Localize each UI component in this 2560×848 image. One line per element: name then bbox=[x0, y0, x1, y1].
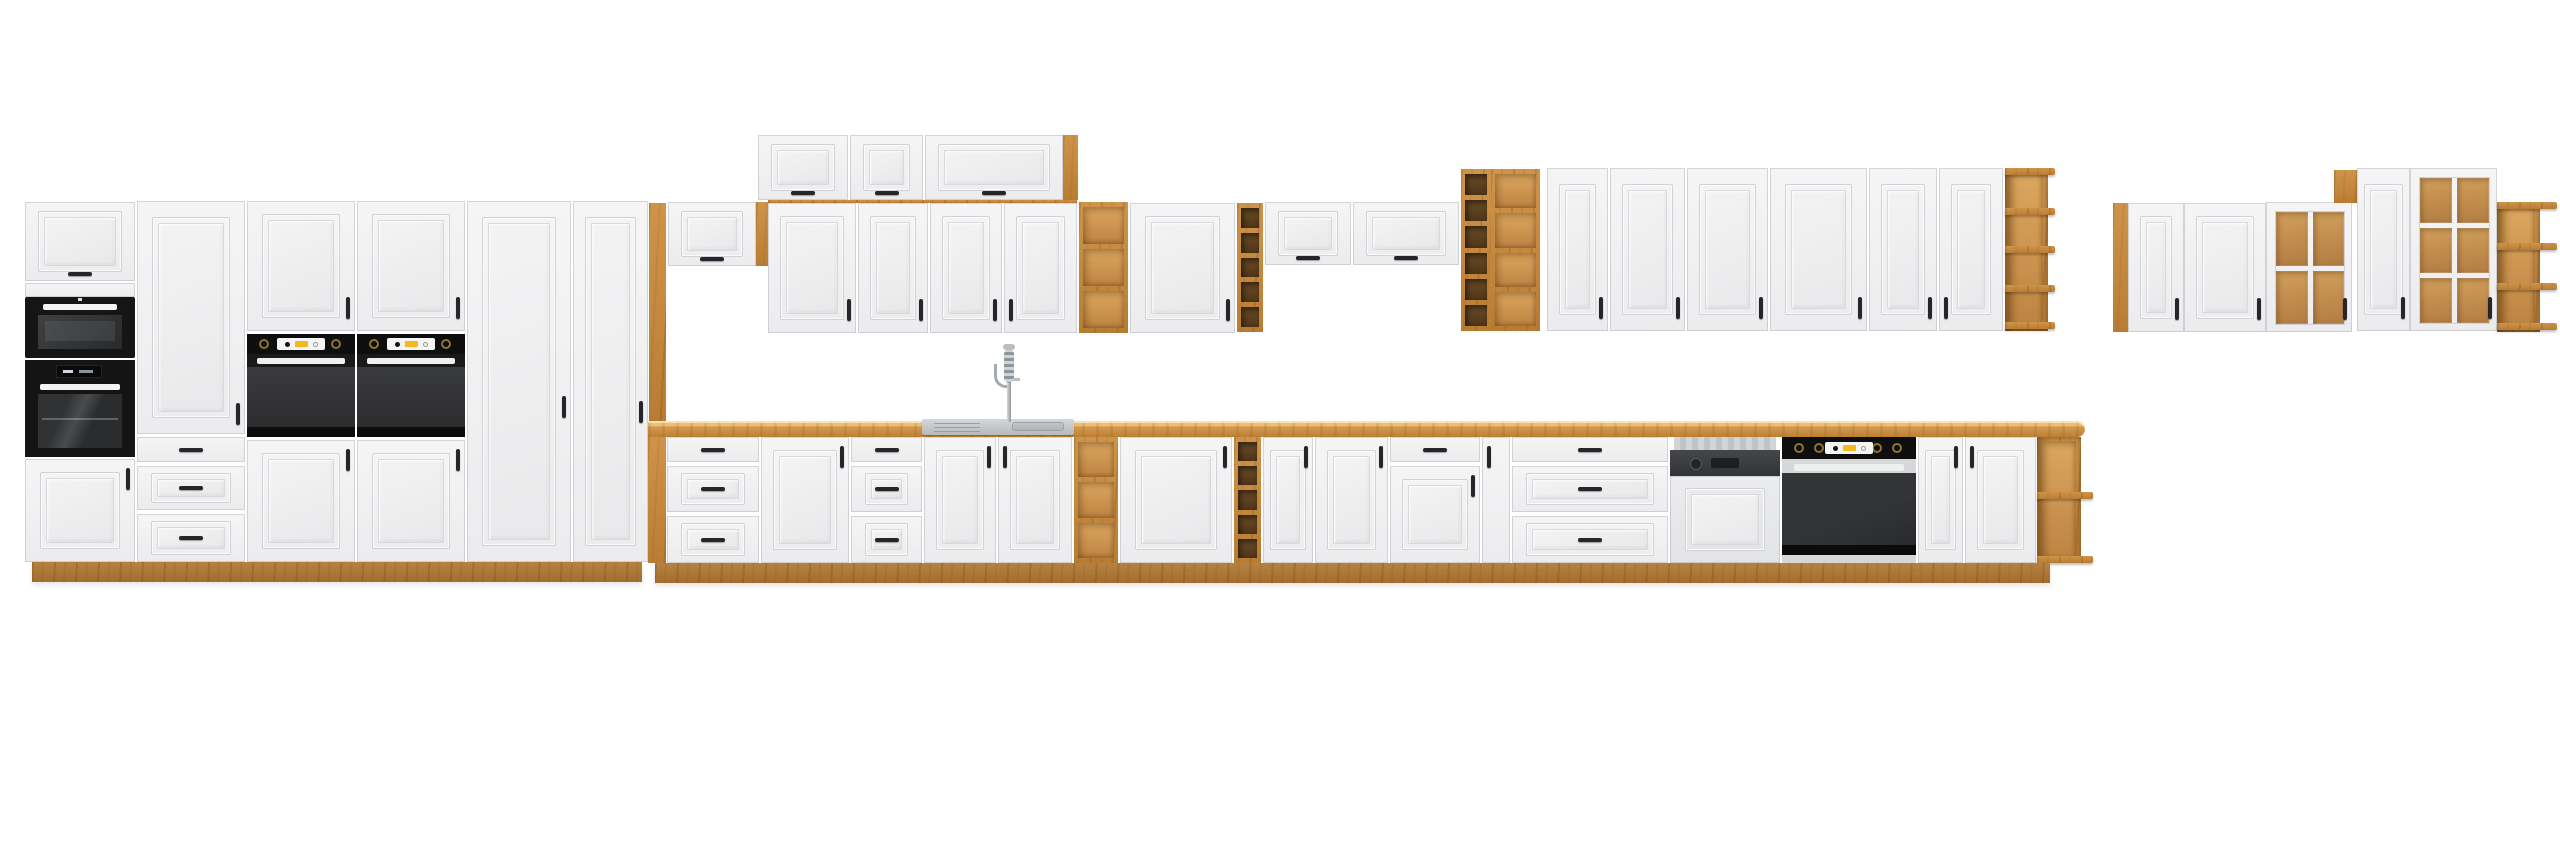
countertop bbox=[648, 421, 2085, 437]
base-plinth bbox=[655, 563, 2050, 583]
microwave bbox=[25, 297, 135, 358]
wall-oak-open-shelf bbox=[1491, 169, 1540, 331]
wall-b-door-5 bbox=[1869, 168, 1937, 331]
wall-a-door-2 bbox=[858, 203, 928, 333]
right-group-a-door-2 bbox=[2184, 203, 2266, 332]
base-door-2 bbox=[1120, 437, 1232, 563]
wall-oak-rack bbox=[1461, 169, 1491, 331]
wall-b-door-2 bbox=[1610, 168, 1685, 331]
oven-column-1-oven bbox=[247, 334, 355, 437]
oven-column-2-oven bbox=[357, 334, 465, 437]
base-door-5 bbox=[1918, 437, 1963, 563]
base-drawer-door-cab bbox=[1390, 437, 1480, 563]
pantry-door-2 bbox=[573, 201, 648, 562]
wall-a-door-3 bbox=[930, 203, 1002, 333]
sink-door-right bbox=[998, 437, 1072, 563]
kitchen-cabinet-set-render bbox=[0, 0, 2560, 848]
wall-oak-column bbox=[1237, 203, 1263, 332]
base-door-6 bbox=[1965, 437, 2036, 563]
tall-cab1-lower-door bbox=[25, 459, 135, 562]
pantry-door-1 bbox=[467, 201, 571, 562]
oven-column-2-upper-door bbox=[357, 201, 465, 331]
oven-column-2-lower-door bbox=[357, 440, 465, 562]
dishwasher bbox=[1670, 437, 1780, 563]
wall-flap-over-counter bbox=[668, 202, 756, 266]
base-oak-end-shelf bbox=[2037, 437, 2093, 563]
oak-upright-right bbox=[756, 202, 768, 266]
base-door-1 bbox=[761, 437, 849, 563]
tall-section-plinth bbox=[32, 562, 642, 582]
wall-top-flap-3 bbox=[925, 135, 1063, 200]
base-drawer-cab-1 bbox=[667, 437, 759, 563]
right-group-b-glass-door bbox=[2410, 168, 2497, 331]
built-in-oven bbox=[1782, 437, 1916, 563]
tall-cab2-drawer-2 bbox=[137, 466, 245, 510]
oven-column-1-lower-door bbox=[247, 440, 355, 562]
wall-top-flap-2 bbox=[850, 135, 923, 200]
wall-b-door-1 bbox=[1547, 168, 1608, 331]
tall-cab1-filler bbox=[25, 283, 135, 297]
base-drawer-cab-2 bbox=[851, 437, 922, 563]
wall-b-door-6 bbox=[1939, 168, 2003, 331]
wall-a-door-1 bbox=[768, 203, 856, 333]
wall-b-door-3 bbox=[1687, 168, 1768, 331]
wall-oak-shelf bbox=[1079, 202, 1128, 333]
faucet bbox=[994, 344, 1020, 422]
wall-a-door-5 bbox=[1130, 203, 1235, 333]
wall-flap-1 bbox=[1265, 202, 1351, 265]
base-door-4 bbox=[1315, 437, 1388, 563]
base-oak-column bbox=[1234, 437, 1261, 563]
right-group-a-glass-door bbox=[2266, 202, 2352, 332]
wall-b-door-4 bbox=[1770, 168, 1867, 331]
compact-oven bbox=[25, 360, 135, 457]
tall-cab1-flap-door bbox=[25, 202, 135, 281]
right-group-b-oak-end-shelf bbox=[2497, 202, 2557, 332]
tall-cab2-drawer-1 bbox=[137, 437, 245, 462]
right-group-b-oak-block bbox=[2334, 170, 2357, 203]
wall-flap-2 bbox=[1353, 202, 1459, 265]
wall-top-flap-1 bbox=[758, 135, 848, 200]
base-filler-door bbox=[1482, 437, 1510, 563]
wall-a-door-4 bbox=[1004, 203, 1077, 333]
wall-b-oak-end-shelf bbox=[2005, 168, 2055, 331]
sink-door-left bbox=[924, 437, 996, 563]
base-oak-side bbox=[648, 437, 666, 563]
base-drawer-cab-3 bbox=[1512, 437, 1668, 563]
right-group-b-door bbox=[2357, 168, 2410, 331]
wall-top-oak-end bbox=[1063, 135, 1078, 200]
oven-column-1-upper-door bbox=[247, 201, 355, 331]
tall-cab2-door bbox=[137, 201, 245, 434]
base-oak-shelf bbox=[1074, 437, 1118, 563]
tall-cab2-drawer-3 bbox=[137, 514, 245, 562]
right-group-a-door-1 bbox=[2128, 203, 2184, 332]
oak-upright-left bbox=[649, 203, 666, 421]
right-group-a-oak-side bbox=[2113, 203, 2128, 332]
base-door-3 bbox=[1263, 437, 1313, 563]
